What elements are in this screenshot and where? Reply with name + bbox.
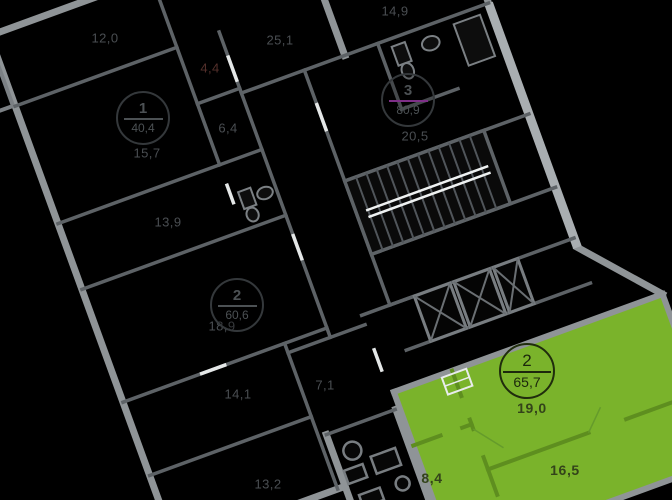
badge-rooms-count: 2 bbox=[522, 351, 531, 371]
badge-total-area: 40,4 bbox=[131, 121, 154, 135]
badge-total-area: 80,9 bbox=[396, 103, 419, 117]
badge-rooms-count: 2 bbox=[233, 287, 241, 304]
badge-total-area: 60,6 bbox=[225, 308, 248, 322]
badge-divider bbox=[124, 118, 163, 120]
apartment-badge[interactable]: 265,7 bbox=[499, 343, 555, 399]
staircase bbox=[345, 130, 511, 254]
badge-divider bbox=[389, 100, 428, 102]
apartment-badge[interactable]: 260,6 bbox=[210, 278, 264, 332]
apartment-badge[interactable]: 140,4 bbox=[116, 91, 170, 145]
badge-divider bbox=[218, 305, 257, 307]
badge-divider bbox=[503, 371, 551, 373]
apartment-badge[interactable]: 380,9 bbox=[381, 73, 435, 127]
badge-rooms-count: 3 bbox=[404, 82, 412, 99]
floor-plan-drawing bbox=[0, 0, 672, 500]
badge-rooms-count: 1 bbox=[139, 100, 147, 117]
badge-total-area: 65,7 bbox=[513, 374, 540, 391]
floor-plan: 12,025,114,94,46,415,713,920,518,914,17,… bbox=[0, 0, 672, 500]
